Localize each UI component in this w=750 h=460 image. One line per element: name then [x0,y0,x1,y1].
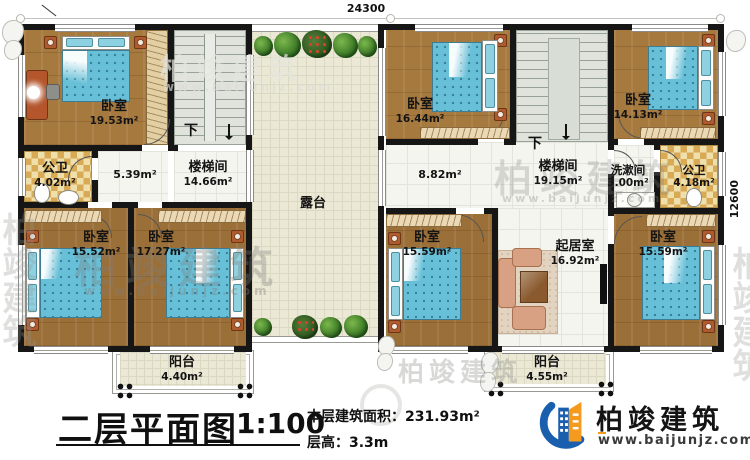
window [640,346,712,354]
wall [510,30,516,145]
wall [18,24,252,30]
floor-height-label: 层高： [307,435,349,451]
room-area: 4.40m² [161,371,202,383]
wall [18,202,88,208]
wardrobe [646,214,716,227]
wardrobe [386,214,462,227]
armchair [512,306,546,330]
room-area: 17.27m² [137,246,186,258]
shrub [726,30,746,52]
desk-lamp [27,86,40,99]
room-name: 卧室 [614,94,663,109]
room-area: 19.15m² [534,175,583,187]
nightstand [388,232,401,245]
balcony-door [502,346,604,354]
nightstand [702,320,715,333]
nightstand [231,318,244,331]
nightstand [231,230,244,243]
plant [333,33,358,58]
wall [92,151,98,158]
room-name: 起居室 [551,240,600,255]
room-label-bedroom-br1: 卧室 15.59m² [403,231,452,258]
bed-pillow [485,44,495,74]
floor-plan-canvas: 柏竣建筑 www.baijunjz.com 柏竣建筑 www.baijunjz.… [0,0,750,460]
logo-mark [536,397,594,455]
dimension-tick [386,14,395,23]
logo-brand: 柏竣建筑 [596,398,724,437]
dimension-width: 24300 [347,2,385,15]
room-name: 阳台 [526,356,567,371]
room-label-bedroom-br2: 卧室 15.59m² [639,231,688,258]
room-label-bedroom-bl2: 卧室 17.27m² [137,231,186,258]
wardrobe [420,127,510,139]
room-label-hall-right: 8.82m² [418,168,461,181]
bed-sheet-fold [196,249,229,283]
bed-sheet-fold [666,47,696,79]
bed-pillow [391,252,400,282]
wall [504,139,516,145]
room-label-bathroom-left: 公卫 4.02m² [34,162,75,189]
wall [92,180,98,202]
bed-pillow [485,78,495,108]
wall [128,208,134,346]
wardrobe [640,127,716,139]
window [18,245,26,325]
desk-chair [46,84,60,100]
room-label-terrace: 露台 [300,197,326,212]
plant [344,315,368,338]
bed-pillow [28,284,37,312]
room-label-stairwell-left: 楼梯间 14.66m² [184,161,233,188]
wall [162,202,246,208]
bed-sheet-fold [63,51,87,101]
room-name: 洗漱间 [607,164,648,177]
dimension-line-top [20,18,722,19]
room-area: 15.59m² [403,246,452,258]
wardrobe [24,210,102,223]
plant [274,32,301,58]
balcony-door [150,346,234,354]
logo-url: www.baijunjz.com [598,433,750,448]
bed-pillow [98,38,125,47]
plant [320,317,342,338]
wall [608,244,614,352]
dimension-height: 12600 [728,180,741,218]
armchair [512,248,542,267]
stairs-right-landing [548,38,580,140]
room-name: 楼梯间 [184,161,233,176]
stairs-down-arrowhead [562,136,570,144]
room-label-bedroom-tr1: 卧室 16.44m² [396,98,445,125]
window [718,52,726,116]
stairs-down-arrowhead [225,136,233,144]
terrace-door [378,150,386,206]
room-name: 公卫 [34,162,75,177]
wardrobe [158,210,246,223]
nightstand [26,230,39,243]
wall [168,30,174,151]
nightstand [44,36,57,49]
nightstand [26,318,39,331]
bed-sheet-fold [41,249,71,279]
window [18,158,26,196]
toilet [686,188,702,207]
column-dots [597,380,614,397]
window [55,24,135,32]
room-name: 卧室 [639,231,688,246]
terrace-door [246,150,254,202]
room-name: 卧室 [90,100,139,115]
wall [170,145,178,151]
bed-pillow [701,80,711,106]
wall [614,139,618,145]
room-name: 卧室 [72,231,121,246]
terrace-floor [252,30,378,338]
room-label-bedroom-bl1: 卧室 15.52m² [72,231,121,258]
room-area: 14.13m² [614,109,663,121]
dimension-tick [16,14,25,23]
room-area: 16.92m² [551,255,600,267]
wall [112,202,138,208]
column-dots [236,382,253,399]
bed-pillow [233,284,242,312]
bed-pillow [66,38,93,47]
room-area: 4.55m² [526,371,567,383]
building-area-line: 本层建筑面积：231.93m² [307,406,480,426]
window [378,48,386,136]
floor-height-value: 3.3m [349,435,388,451]
window [34,346,108,354]
company-logo: 柏竣建筑 www.baijunjz.com [536,396,746,456]
column-dots [116,382,133,399]
title-underline [56,444,300,446]
room-label-bedroom-tl: 卧室 19.53m² [90,100,139,127]
room-label-bathroom-right: 公卫 4.18m² [673,164,714,189]
room-area: 16.44m² [396,113,445,125]
coffee-table [520,271,548,303]
room-area: 14.66m² [184,176,233,188]
room-label-balcony-left: 阳台 4.40m² [161,356,202,383]
flower-arrangement [302,30,332,58]
window [718,245,726,325]
stairs-down-label-right: 下 [528,133,542,153]
room-label-bedroom-tr2: 卧室 14.13m² [614,94,663,121]
nightstand [702,112,715,125]
room-label-washroom: 洗漱间 3.00m² [607,164,648,189]
sink [58,190,79,205]
room-name: 阳台 [161,356,202,371]
bed-pillow [233,252,242,280]
nightstand [134,36,147,49]
sink [627,193,642,207]
wall [18,145,142,151]
bed-pillow [28,252,37,280]
wall [608,24,614,150]
building-area-value: 231.93m² [405,409,480,425]
plant [358,36,377,57]
room-name: 楼梯间 [534,160,583,175]
room-area: 15.52m² [72,246,121,258]
window [415,24,503,32]
plant [254,318,272,336]
nightstand [388,320,401,333]
bed-pillow [391,286,400,316]
bed-pillow [703,284,712,314]
room-area: 15.59m² [639,246,688,258]
window [632,24,708,32]
room-area: 19.53m² [90,115,139,127]
stairs-down-label-left: 下 [184,120,198,140]
bed-sheet-fold [449,43,481,77]
flower-arrangement [292,315,318,339]
room-name: 露台 [300,197,326,212]
bed-pillow [701,50,711,76]
watermark-edge-right: 柏竣建筑 [722,246,750,382]
shrub [377,353,393,371]
room-area: 4.18m² [673,177,714,189]
floor-height-line: 层高：3.3m [307,432,388,452]
plant [254,36,273,56]
room-name: 卧室 [396,98,445,113]
window [392,346,468,354]
nightstand [702,230,715,243]
bed-pillow [703,250,712,280]
room-label-balcony-right: 阳台 4.55m² [526,356,567,383]
room-label-hall-left: 5.39m² [113,168,156,181]
room-name: 卧室 [137,231,186,246]
building-area-label: 本层建筑面积： [307,409,405,425]
wall [386,139,478,145]
dimension-tick [716,14,725,23]
window [246,55,254,135]
window [18,55,26,117]
window [718,152,726,196]
room-label-living: 起居室 16.92m² [551,240,600,267]
room-area: 3.00m² [607,177,648,189]
room-name: 卧室 [403,231,452,246]
room-label-stairwell-right: 楼梯间 19.15m² [534,160,583,187]
room-area: 4.02m² [34,177,75,189]
room-name: 公卫 [673,164,714,177]
stairs-left-stringer [204,34,216,141]
corner-tick [42,5,57,17]
tv [600,264,607,304]
